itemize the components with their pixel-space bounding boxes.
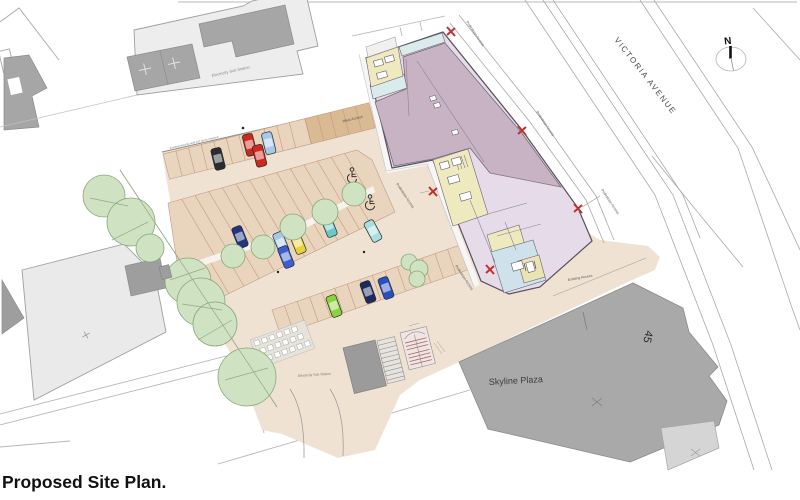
svg-text:N: N [724, 36, 732, 48]
svg-text:Pedestrian Access: Pedestrian Access [600, 188, 620, 215]
svg-text:Pedestrian Access: Pedestrian Access [465, 20, 485, 47]
svg-text:Proposed Site Plan.: Proposed Site Plan. [2, 472, 166, 492]
